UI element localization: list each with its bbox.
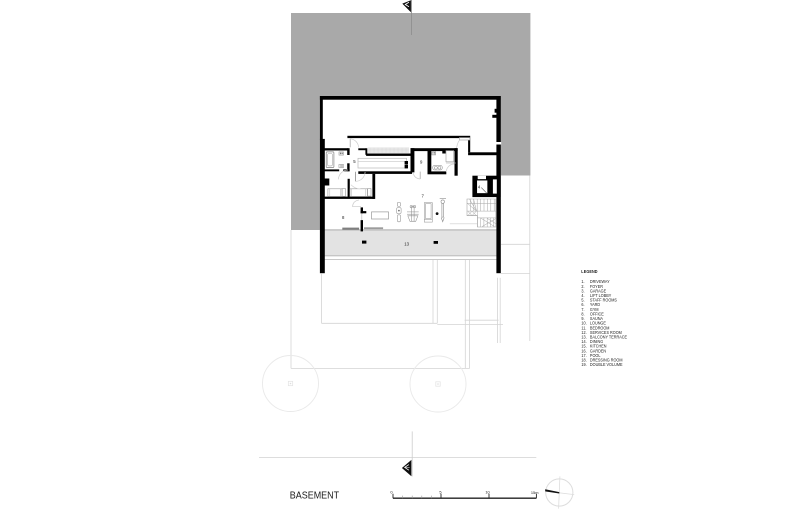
svg-text:15m: 15m bbox=[531, 490, 539, 495]
svg-text:DOUBLE VOLUME: DOUBLE VOLUME bbox=[590, 362, 623, 367]
svg-text:LEGEND: LEGEND bbox=[581, 269, 597, 274]
svg-text:19.: 19. bbox=[581, 362, 586, 367]
svg-text:5: 5 bbox=[439, 490, 441, 495]
svg-text:BASEMENT: BASEMENT bbox=[290, 490, 339, 502]
svg-text:13: 13 bbox=[404, 241, 409, 246]
